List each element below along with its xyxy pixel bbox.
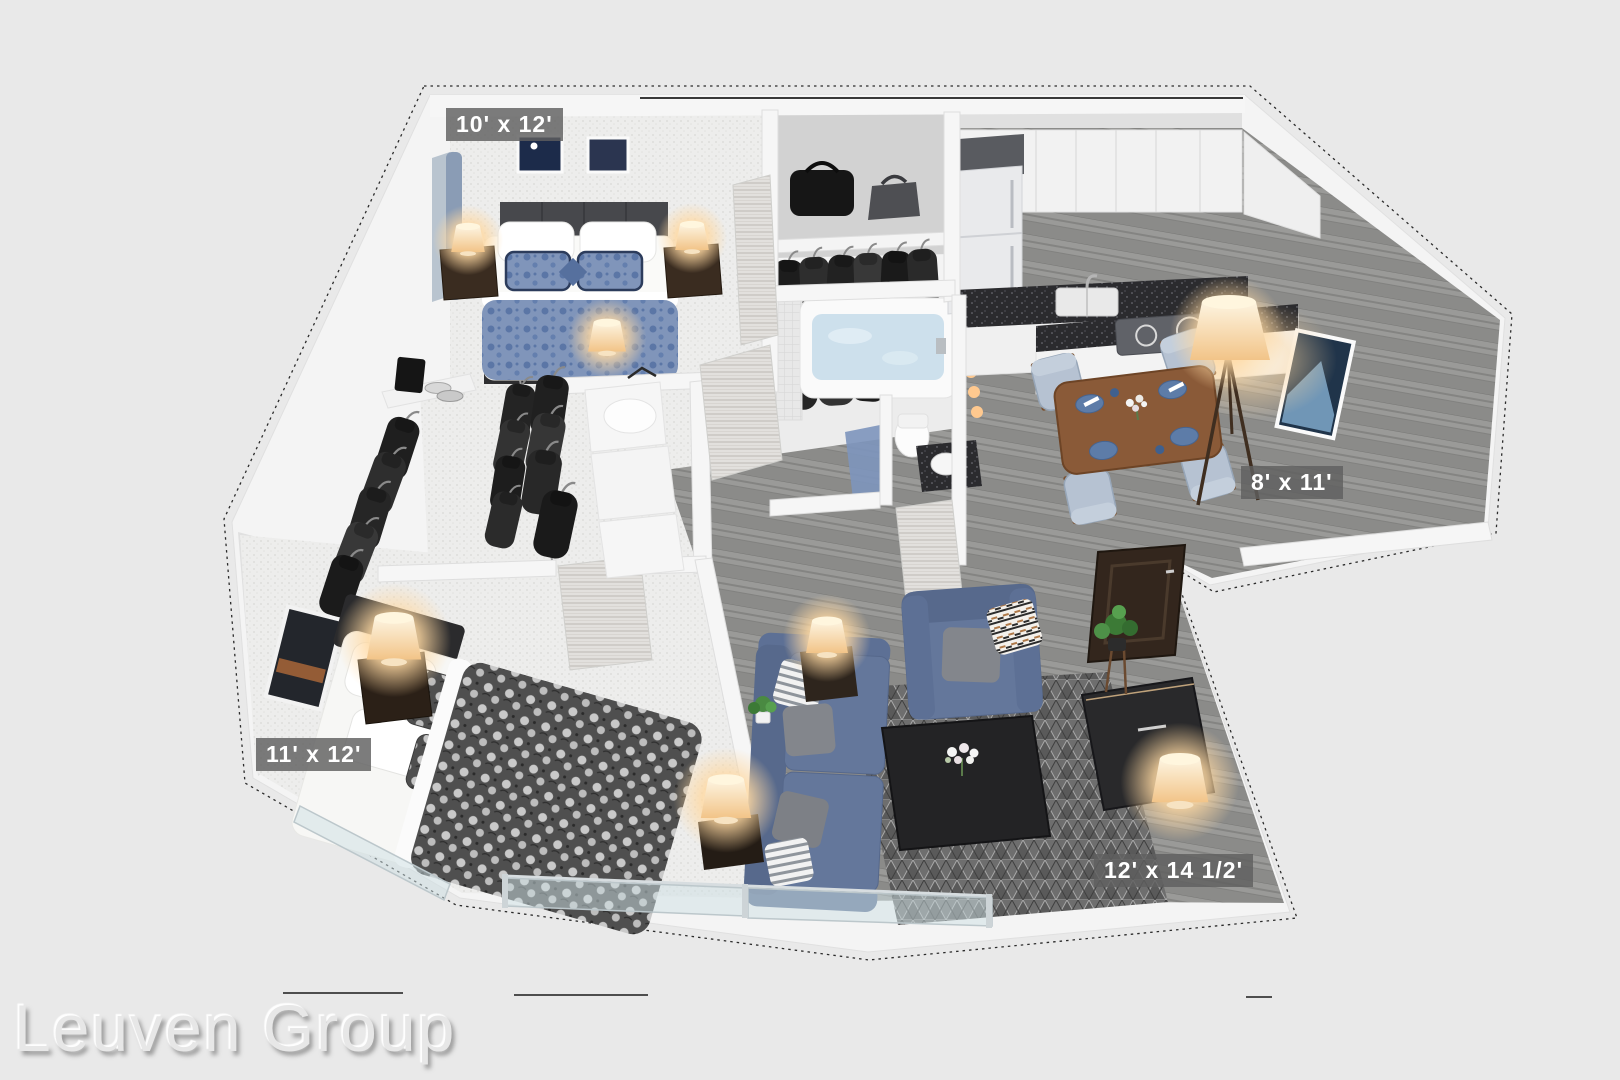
duffel-bag-icon [790,170,854,216]
table-lamp-icon [337,583,451,697]
table-lamp-icon [657,203,727,273]
floor-lamp-icon [783,594,871,682]
door-handle-icon [1166,571,1174,572]
room-label-bedroom-bottom: 11' x 12' [256,738,371,771]
room-label-dining: 8' x 11' [1241,466,1343,499]
door-panel [733,175,778,345]
floorplan-svg [0,0,1620,1080]
shoe-icon [437,391,463,402]
shopping-bag-icon [394,357,425,394]
moon-icon [531,143,538,150]
vanity-light-icon [968,386,980,398]
watermark: Leuven Group [14,990,456,1066]
handbag-icon [868,182,920,220]
room-label-living: 12' x 14 1/2' [1094,854,1253,887]
door-panel [700,345,782,480]
vanity-light-icon [971,406,983,418]
room-label-bedroom-top: 10' x 12' [446,108,563,141]
floor-lamp-icon [1121,723,1240,842]
armchair [901,583,1049,720]
wall-art-icon [588,138,628,172]
wall-art-icon [518,136,562,172]
floor-lamp-icon [673,747,779,853]
throw-pillow [763,836,815,888]
throw-pillow [782,703,836,757]
faucet-icon [936,338,946,354]
wardrobe-unit [591,446,676,520]
coffee-table [882,716,1050,850]
accent-pillow [578,252,642,290]
door-panel [896,500,962,600]
bath-water [812,314,944,380]
round-table [604,399,656,433]
table-lamp-icon [433,205,503,275]
table-lamp-icon [567,298,646,377]
entry-door [1088,545,1185,662]
wardrobe-unit [599,514,684,578]
floorplan-stage: 10' x 12' 8' x 11' 11' x 12' 12' x 14 1/… [0,0,1620,1080]
